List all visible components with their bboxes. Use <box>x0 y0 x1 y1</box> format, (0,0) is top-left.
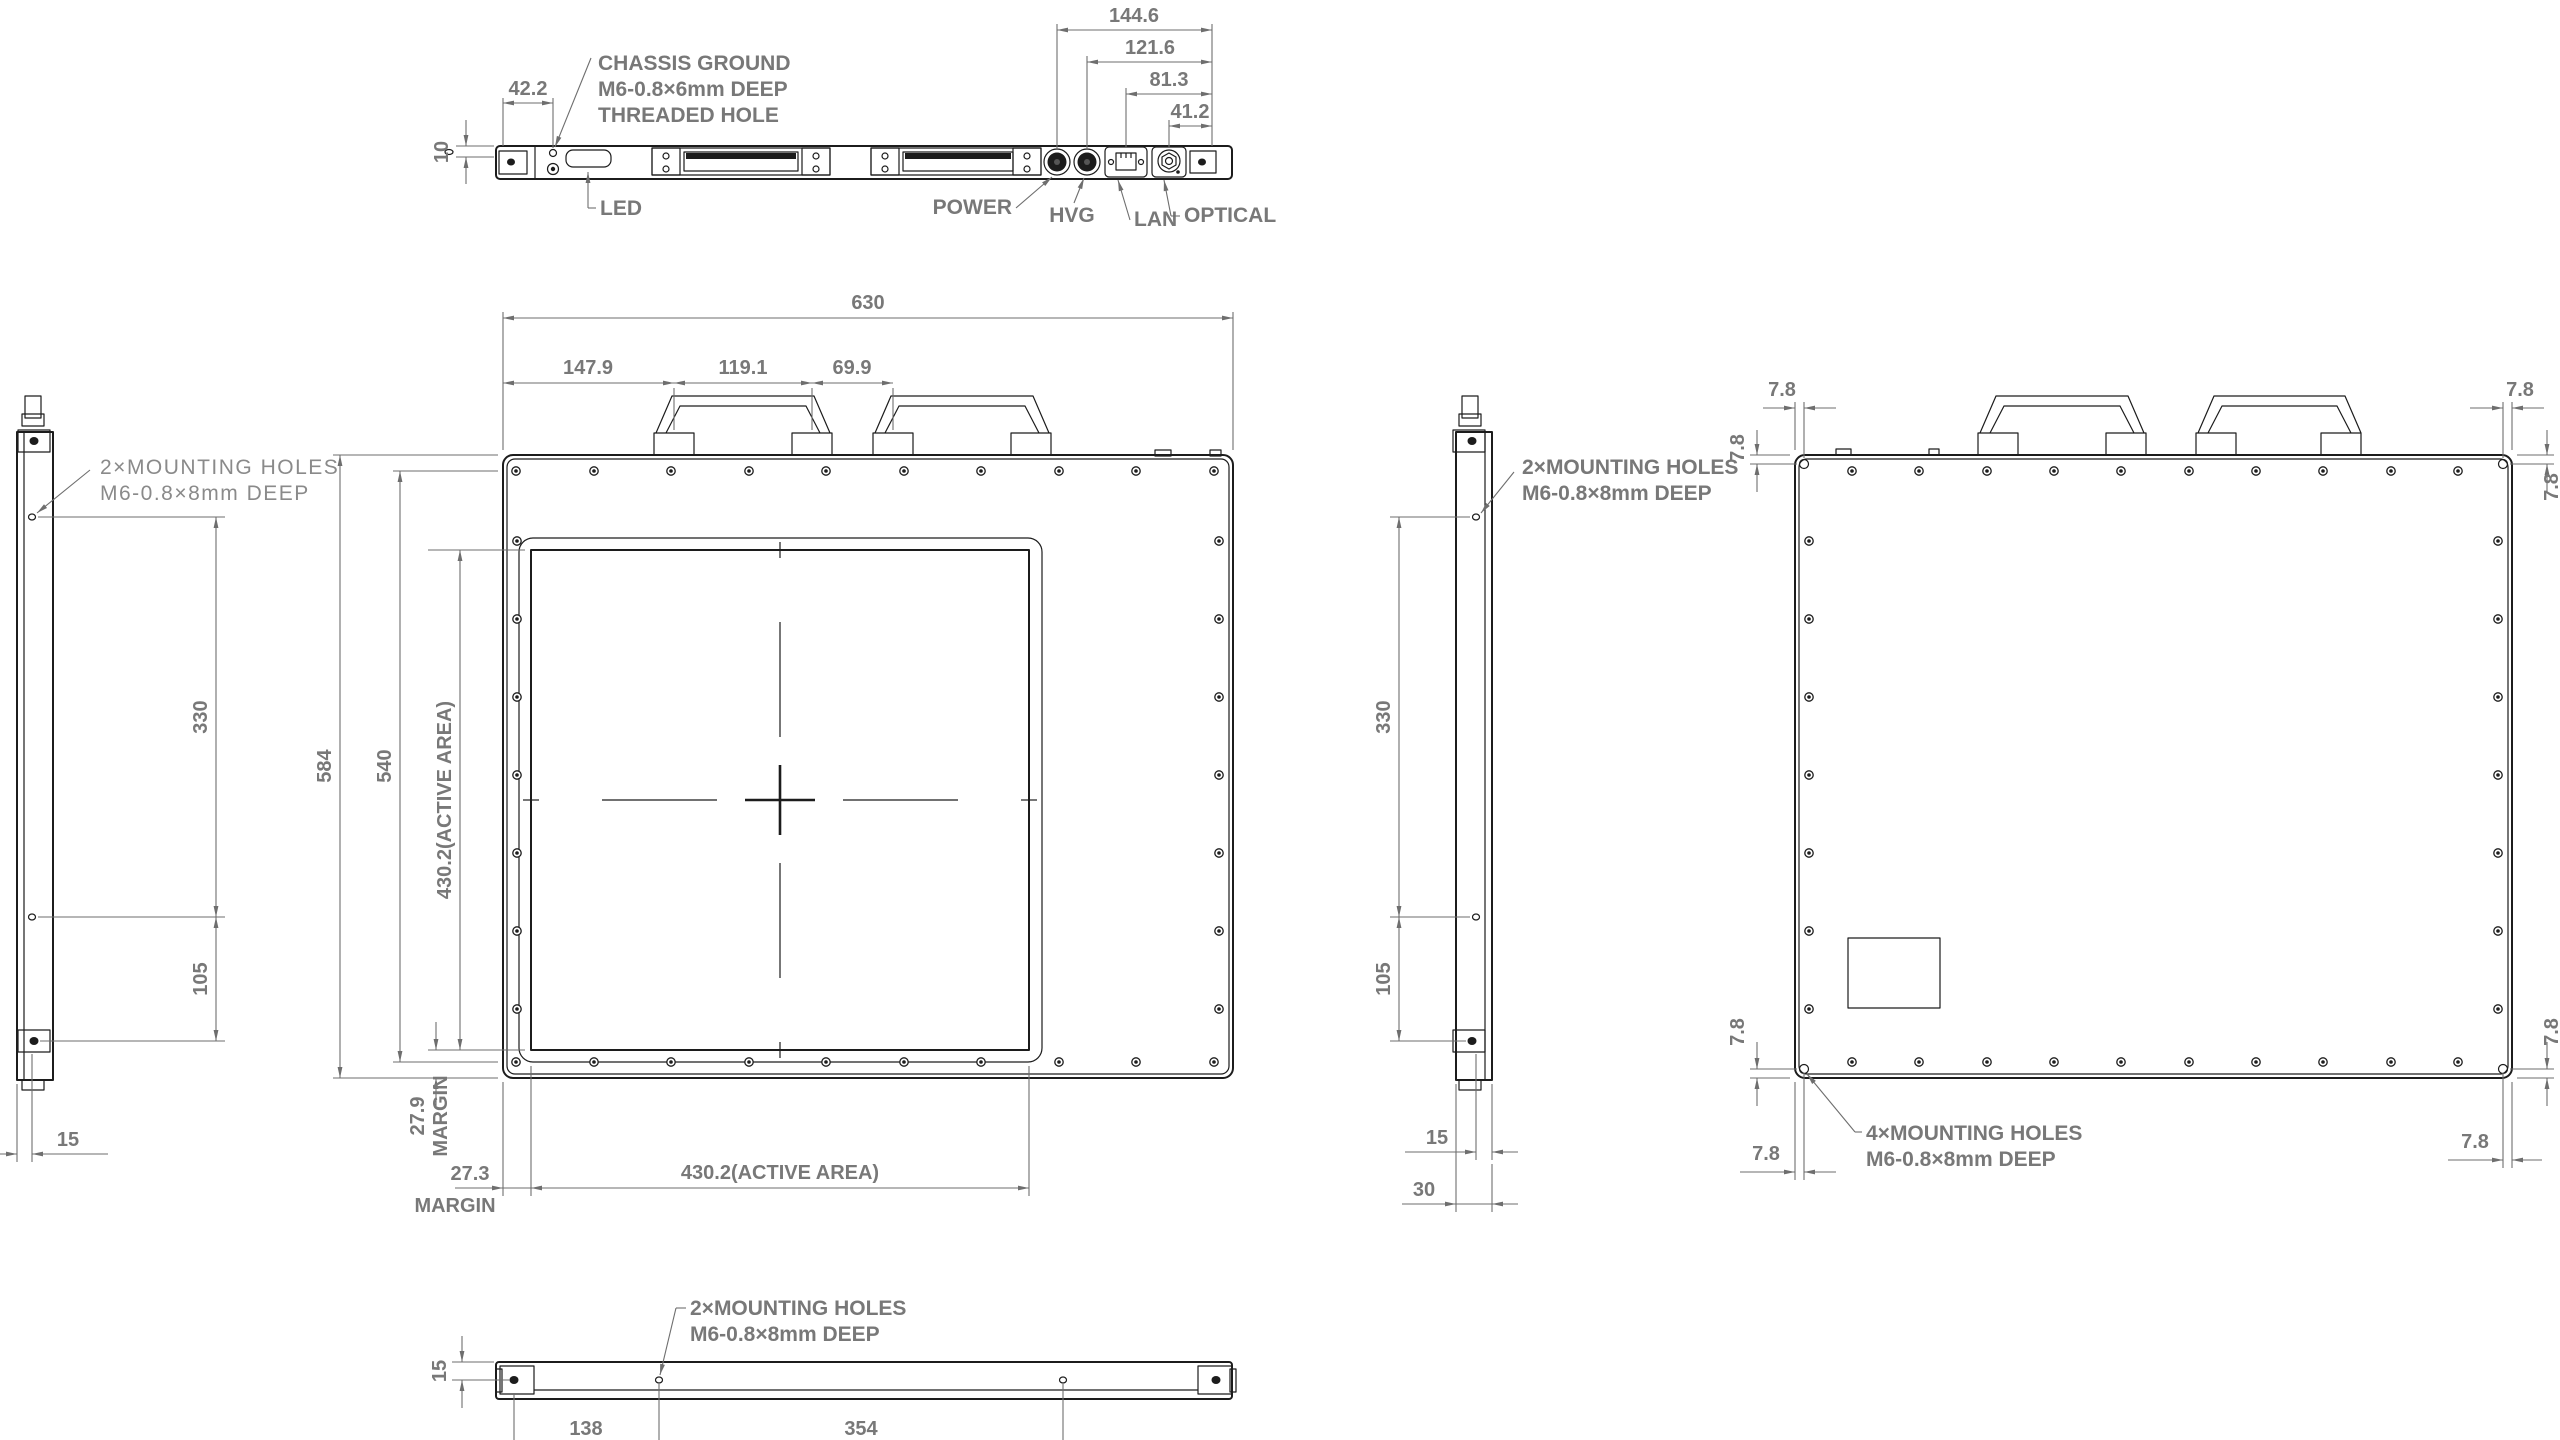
chassis-ground-note: CHASSIS GROUND <box>598 52 791 75</box>
dim-7-8: 7.8 <box>1752 1143 1780 1165</box>
mounting-hole <box>29 514 36 520</box>
dim-active-h: 430.2(ACTIVE AREA) <box>681 1162 879 1184</box>
handle-front-1 <box>654 396 832 455</box>
right-mounting-note: 2×MOUNTING HOLES <box>1522 456 1738 479</box>
led-indicator <box>566 150 611 167</box>
center-crosshair <box>523 542 1037 1058</box>
bottom-mounting-note: 2×MOUNTING HOLES <box>690 1297 906 1320</box>
label-optical: OPTICAL <box>1184 204 1276 227</box>
dim-7-8: 7.8 <box>1727 1018 1749 1046</box>
label-lan: LAN <box>1134 208 1177 231</box>
dim-330: 330 <box>1373 700 1395 733</box>
dim-7-8: 7.8 <box>2506 379 2534 401</box>
svg-text:M6-0.8×8mm DEEP: M6-0.8×8mm DEEP <box>1866 1148 2056 1171</box>
dim-105: 105 <box>190 962 212 995</box>
mounting-hole <box>1473 914 1480 920</box>
dim-7-8: 7.8 <box>1768 379 1796 401</box>
dim-69-9: 69.9 <box>833 357 872 379</box>
dim-81-3: 81.3 <box>1150 69 1189 91</box>
label-hvg: HVG <box>1049 204 1095 227</box>
dim-7-8: 7.8 <box>2541 473 2560 501</box>
optical-connector <box>1152 147 1186 177</box>
dim-30: 30 <box>1413 1179 1435 1201</box>
label-power: POWER <box>933 196 1012 219</box>
mounting-hole <box>29 914 36 920</box>
dimension-drawing: CHASSIS GROUND M6-0.8×6mm DEEP THREADED … <box>0 0 2560 1440</box>
label-plate <box>1848 938 1940 1008</box>
svg-text:M6-0.8×8mm DEEP: M6-0.8×8mm DEEP <box>690 1323 880 1346</box>
dim-540: 540 <box>374 749 396 782</box>
left-side-view: 2×MOUNTING HOLES M6-0.8×8mm DEEP 330 105… <box>0 396 339 1162</box>
label-margin-h: MARGIN <box>414 1195 495 1217</box>
corner-mounting-hole <box>2499 460 2508 469</box>
dim-105: 105 <box>1373 962 1395 995</box>
dim-354: 354 <box>844 1418 878 1440</box>
dim-27-9: 27.9 <box>407 1097 429 1136</box>
chassis-ground-hole <box>550 150 557 157</box>
corner-mounting-hole <box>1800 460 1809 469</box>
dim-147-9: 147.9 <box>563 357 613 379</box>
front-view: 630 147.9 119.1 69.9 584 540 430.2(ACTIV… <box>314 292 1233 1217</box>
dim-7-8: 7.8 <box>2541 1018 2560 1046</box>
power-connector <box>1044 149 1070 175</box>
svg-text:M6-0.8×8mm DEEP: M6-0.8×8mm DEEP <box>1522 482 1712 505</box>
handle-top-2 <box>871 148 1041 175</box>
dim-15: 15 <box>429 1360 451 1382</box>
rear-mounting-note: 4×MOUNTING HOLES <box>1866 1122 2082 1145</box>
svg-text:M6-0.8×6mm DEEP: M6-0.8×6mm DEEP <box>598 78 788 101</box>
dim-144-6: 144.6 <box>1109 5 1159 27</box>
dim-119-1: 119.1 <box>719 357 768 379</box>
corner-mounting-hole <box>2499 1065 2508 1074</box>
dim-121-6: 121.6 <box>1125 37 1175 59</box>
svg-text:THREADED HOLE: THREADED HOLE <box>598 104 779 127</box>
dim-584: 584 <box>314 748 336 782</box>
dim-41-2: 41.2 <box>1171 101 1210 123</box>
mounting-hole <box>656 1377 663 1383</box>
dim-10: 10 <box>431 141 453 163</box>
handle-rear-1 <box>1978 396 2146 455</box>
label-led: LED <box>600 197 642 220</box>
hvg-connector <box>1074 149 1100 175</box>
drawing-sheet: CHASSIS GROUND M6-0.8×6mm DEEP THREADED … <box>0 0 2560 1440</box>
dim-42-2: 42.2 <box>509 78 548 100</box>
dim-active-v: 430.2(ACTIVE AREA) <box>434 701 456 899</box>
bottom-edge-view: 2×MOUNTING HOLES M6-0.8×8mm DEEP 15 138 … <box>429 1297 1236 1440</box>
right-side-view: 2×MOUNTING HOLES M6-0.8×8mm DEEP 330 105… <box>1373 396 1738 1212</box>
svg-text:M6-0.8×8mm DEEP: M6-0.8×8mm DEEP <box>100 482 310 505</box>
dim-330: 330 <box>190 700 212 733</box>
dim-7-8: 7.8 <box>2461 1131 2489 1153</box>
dim-7-8: 7.8 <box>1727 434 1749 462</box>
perimeter-screws <box>512 467 2502 1066</box>
dim-15: 15 <box>1426 1127 1448 1149</box>
dim-138: 138 <box>569 1418 602 1440</box>
mounting-hole <box>1060 1377 1067 1383</box>
handle-rear-2 <box>2196 396 2361 455</box>
lan-port <box>1105 147 1147 177</box>
dim-630: 630 <box>851 292 884 314</box>
mounting-hole <box>1473 514 1480 520</box>
handle-front-2 <box>873 396 1051 455</box>
dim-27-3: 27.3 <box>451 1163 490 1185</box>
label-margin-v: MARGIN <box>430 1075 452 1156</box>
left-mounting-note: 2×MOUNTING HOLES <box>100 456 339 479</box>
dim-15: 15 <box>57 1129 79 1151</box>
top-edge-view: CHASSIS GROUND M6-0.8×6mm DEEP THREADED … <box>431 5 1276 231</box>
handle-top-1 <box>652 148 830 175</box>
corner-mounting-hole <box>1800 1065 1809 1074</box>
